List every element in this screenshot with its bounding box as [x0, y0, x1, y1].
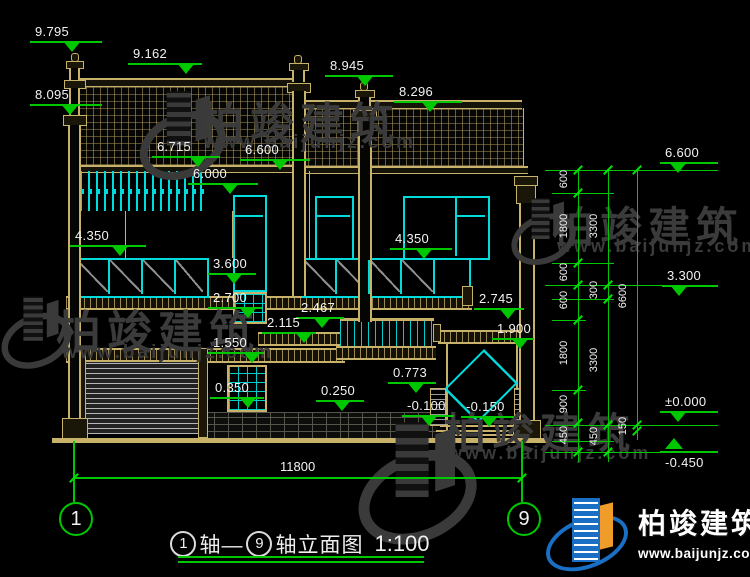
- window-post: [108, 260, 110, 294]
- dim-label-6600: 6600: [617, 274, 629, 318]
- elevation-marker-8.296: 8.296: [394, 101, 462, 103]
- elevation-marker-3.300: 3.300: [662, 285, 718, 287]
- window-post: [368, 260, 370, 294]
- eave-fringe-band: [80, 189, 208, 194]
- axis-bubble-9: 9: [507, 502, 541, 536]
- garage-door: [84, 360, 198, 434]
- glazing-diagonal: [176, 260, 203, 292]
- glazing-diagonal: [110, 260, 141, 292]
- elevation-marker-6.715: 6.715: [152, 156, 220, 158]
- column-mid-neck: [292, 70, 305, 82]
- title-scale: 1:100: [374, 531, 429, 557]
- brand-name: 柏竣建筑: [638, 502, 750, 542]
- dim-chain-3: [637, 170, 638, 440]
- dim-label-300: 300: [588, 268, 600, 312]
- glazing-diagonal: [402, 260, 433, 292]
- dim-label-450: 450: [588, 414, 600, 458]
- axis-bubble-1: 1: [59, 502, 93, 536]
- elevation-marker-6.000: 6.000: [188, 183, 258, 185]
- title-axis-end: 9: [246, 531, 272, 557]
- title-underline-2: [178, 561, 424, 563]
- elevation-marker-2.467: 2.467: [296, 317, 344, 319]
- elevation-marker-0.250: 0.250: [316, 400, 364, 402]
- bottom-dim-text: 11800: [280, 459, 315, 474]
- elevation-drawing-canvas: 9.7959.1628.9458.2968.0956.7156.6006.000…: [0, 0, 750, 577]
- elevation-marker--0.100: -0.100: [402, 415, 454, 417]
- brick-base-left: [200, 412, 348, 439]
- elevation-marker-1.900: 1.900: [492, 338, 534, 340]
- column1-shaft: [68, 125, 81, 418]
- drawing-title: 1 轴— 9 轴立面图 1:100: [150, 529, 450, 559]
- elevation-marker-2.745: 2.745: [474, 308, 524, 310]
- axis-line-1: [73, 441, 75, 502]
- elevation-marker-4.350: 4.350: [70, 245, 146, 247]
- elevation-marker-3.600: 3.600: [208, 273, 256, 275]
- elevation-marker-2.700: 2.700: [208, 307, 262, 309]
- extension-line: [545, 425, 718, 426]
- elevation-marker--0.450: -0.450: [660, 451, 718, 453]
- elevation-marker-8.945: 8.945: [325, 75, 393, 77]
- elevation-marker-6.600: 6.600: [660, 162, 718, 164]
- window-post: [174, 260, 176, 294]
- glazing-diagonal: [143, 260, 174, 292]
- dim-label-3300: 3300: [588, 204, 600, 248]
- brand-logo-building-icon: [572, 498, 600, 562]
- glazing-diagonal: [304, 260, 335, 292]
- terrace-railing-1f: [340, 318, 434, 349]
- window-post: [141, 260, 143, 294]
- column1-base: [62, 418, 88, 439]
- title-seg1: 轴—: [199, 529, 243, 559]
- window-transom: [457, 215, 485, 217]
- elevation-marker-9.795: 9.795: [30, 41, 102, 43]
- elevation-marker-2.115: 2.115: [262, 332, 316, 334]
- elevation-marker--0.150: -0.150: [461, 416, 514, 418]
- glazing-diagonal: [77, 260, 108, 292]
- window-mullion: [455, 198, 457, 256]
- dim-label-3300: 3300: [588, 338, 600, 382]
- elevation-marker-8.095: 8.095: [30, 104, 102, 106]
- watermark-url: www.baijunjz.com: [204, 132, 416, 154]
- axis-line-9: [521, 441, 523, 502]
- dim-label-600: 600: [558, 157, 570, 201]
- dim-chain-2: [608, 170, 609, 462]
- elevation-marker-0.350: 0.350: [210, 397, 264, 399]
- window-post: [400, 260, 402, 294]
- elevation-marker-4.350: 4.350: [390, 248, 452, 250]
- title-axis-start: 1: [170, 531, 196, 557]
- left-roof-ridge: [78, 78, 292, 87]
- dim-label-150: 150: [617, 404, 629, 448]
- elevation-marker-1.550: 1.550: [208, 352, 264, 354]
- brand-logo: 柏竣建筑 www.baijunjz.com: [538, 490, 750, 577]
- watermark-url: www.baijunjz.com: [557, 236, 750, 257]
- right-roof-eave: [296, 166, 528, 174]
- window-2f-small: [315, 196, 354, 260]
- dim-label-450: 450: [558, 413, 570, 457]
- window-post: [335, 260, 337, 294]
- brand-url: www.baijunjz.com: [638, 546, 750, 561]
- brand-logo-orange-icon: [600, 502, 613, 549]
- bottom-dim-line: [74, 477, 522, 479]
- column1-neck: [69, 68, 80, 80]
- canopy-upturn: [433, 324, 441, 342]
- glazing-diagonal: [370, 260, 400, 292]
- elevation-marker-9.162: 9.162: [128, 63, 202, 65]
- extension-line: [545, 170, 718, 171]
- elevation-marker-±0.000: ±0.000: [660, 411, 718, 413]
- window-post: [433, 260, 435, 294]
- dim-label-1800: 1800: [558, 331, 570, 375]
- dim-label-1800: 1800: [558, 204, 570, 248]
- dim-label-600: 600: [558, 278, 570, 322]
- elevation-marker-6.600: 6.600: [240, 159, 310, 161]
- elevation-marker-0.773: 0.773: [388, 382, 436, 384]
- stair-window-transom: [235, 215, 263, 217]
- slab-upturn: [462, 286, 473, 306]
- terrace-slab: [336, 346, 436, 360]
- title-underline-1: [178, 556, 424, 558]
- window-transom: [317, 215, 350, 217]
- title-seg2: 轴立面图: [275, 529, 363, 559]
